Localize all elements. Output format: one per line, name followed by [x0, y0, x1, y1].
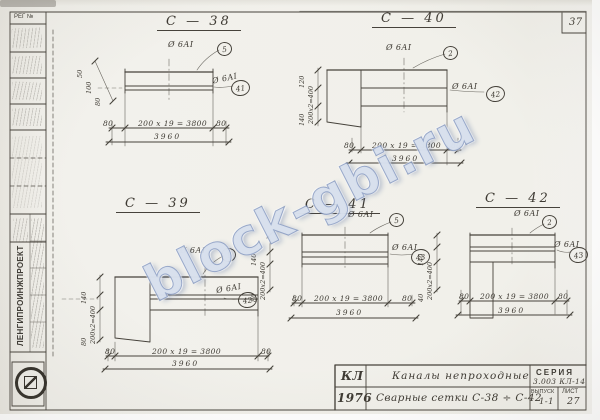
titleblock-year: 1976 — [337, 391, 372, 405]
org-name: ЛЕНГИПРОИНЖПРОЕКТ — [16, 246, 25, 346]
stamp-seal — [15, 367, 47, 399]
side-dim: 200х2=400 — [307, 86, 315, 124]
diagram-title: С — 40 — [372, 11, 456, 28]
handwriting-scribble — [31, 218, 44, 348]
sheet-label: ЛИСТ — [562, 389, 578, 395]
handwriting-scribble — [13, 218, 28, 242]
side-dim: 120 — [298, 76, 306, 88]
dim-end-left: 80 — [344, 141, 354, 150]
dim-end-left: 80 — [103, 119, 113, 128]
side-dim: 100 — [85, 82, 93, 94]
mesh-c41-lines — [267, 222, 419, 321]
scan-edge-bottom — [0, 414, 600, 420]
side-dim: 40 — [417, 294, 425, 302]
dim-end-right: 80 — [402, 294, 412, 303]
side-dim: 80 — [250, 294, 258, 302]
titleblock-subject: Каналы непроходные — [392, 370, 530, 382]
sheet-value: 27 — [567, 396, 580, 407]
diagram-title: С — 39 — [116, 196, 200, 213]
titleblock-sheet-title: Сварные сетки С-38 ÷ С-42 — [376, 392, 542, 404]
mesh-c42-lines — [434, 224, 573, 318]
series-label: СЕРИЯ — [536, 368, 574, 377]
side-dim: 200х2=400 — [426, 262, 434, 300]
dim-spacing: 200 х 19 = 3800 — [372, 141, 441, 150]
side-dim: 140 — [80, 292, 88, 304]
dim-total: 3960 — [154, 132, 181, 141]
dim-total: 3960 — [498, 306, 525, 315]
dim-end-left: 80 — [105, 347, 115, 356]
side-dim: 140 — [417, 254, 425, 266]
side-dim: 200х2=400 — [89, 306, 97, 344]
side-dim: 80 — [80, 338, 88, 346]
reg-number-label: РЕГ № — [14, 14, 33, 20]
corner-sheet-number: 37 — [569, 17, 583, 28]
rebar-label: Ø 6АI — [348, 210, 373, 219]
rebar-label: Ø 6АI — [168, 40, 193, 49]
side-dim: 80 — [94, 98, 102, 106]
dim-end-left: 80 — [292, 294, 302, 303]
diagram-title: С — 42 — [476, 191, 560, 208]
handwriting-scribble — [12, 136, 42, 208]
side-dim: 200х2=400 — [259, 262, 267, 300]
titleblock-code: КЛ — [341, 369, 363, 383]
dim-spacing: 200 х 19 = 3800 — [480, 292, 549, 301]
dim-end-right: 80 — [261, 347, 271, 356]
rebar-label: Ø 6АI — [386, 43, 411, 52]
dim-end-left: 80 — [459, 292, 469, 301]
dim-spacing: 200 х 19 = 3800 — [152, 347, 221, 356]
handwriting-scribble — [12, 108, 42, 126]
side-dim: 50 — [76, 70, 84, 78]
rebar-label: Ø 6АI — [452, 82, 477, 91]
diagram-title: С — 38 — [157, 14, 241, 31]
rebar-label: Ø 6АI — [514, 209, 539, 218]
handwriting-scribble — [12, 81, 43, 100]
handwriting-scribble — [12, 56, 42, 74]
dim-total: 3960 — [172, 359, 199, 368]
dim-end-right: 80 — [451, 141, 461, 150]
dim-total: 3960 — [392, 154, 419, 163]
dim-total: 3960 — [336, 308, 363, 317]
dim-spacing: 200 х 19 = 3800 — [138, 119, 207, 128]
drawing-sheet: РЕГ № ЛЕНГИПРОИНЖПРОЕКТ 37 С — 38 Ø 6АI … — [0, 0, 600, 420]
series-value: 3.003 КЛ-14 — [533, 377, 585, 386]
handwriting-scribble — [12, 27, 43, 48]
dim-end-right: 80 — [216, 119, 226, 128]
seal-mark — [24, 376, 37, 389]
dim-spacing: 200 х 19 = 3800 — [314, 294, 383, 303]
issue-label: ВЫПУСК — [531, 389, 554, 395]
scan-edge-right — [592, 0, 600, 420]
rebar-label: Ø 6АI — [180, 246, 205, 255]
side-dim: 140 — [298, 114, 306, 126]
issue-value: 1-1 — [539, 397, 554, 407]
side-dim: 140 — [250, 254, 258, 266]
dim-end-right: 80 — [558, 292, 568, 301]
